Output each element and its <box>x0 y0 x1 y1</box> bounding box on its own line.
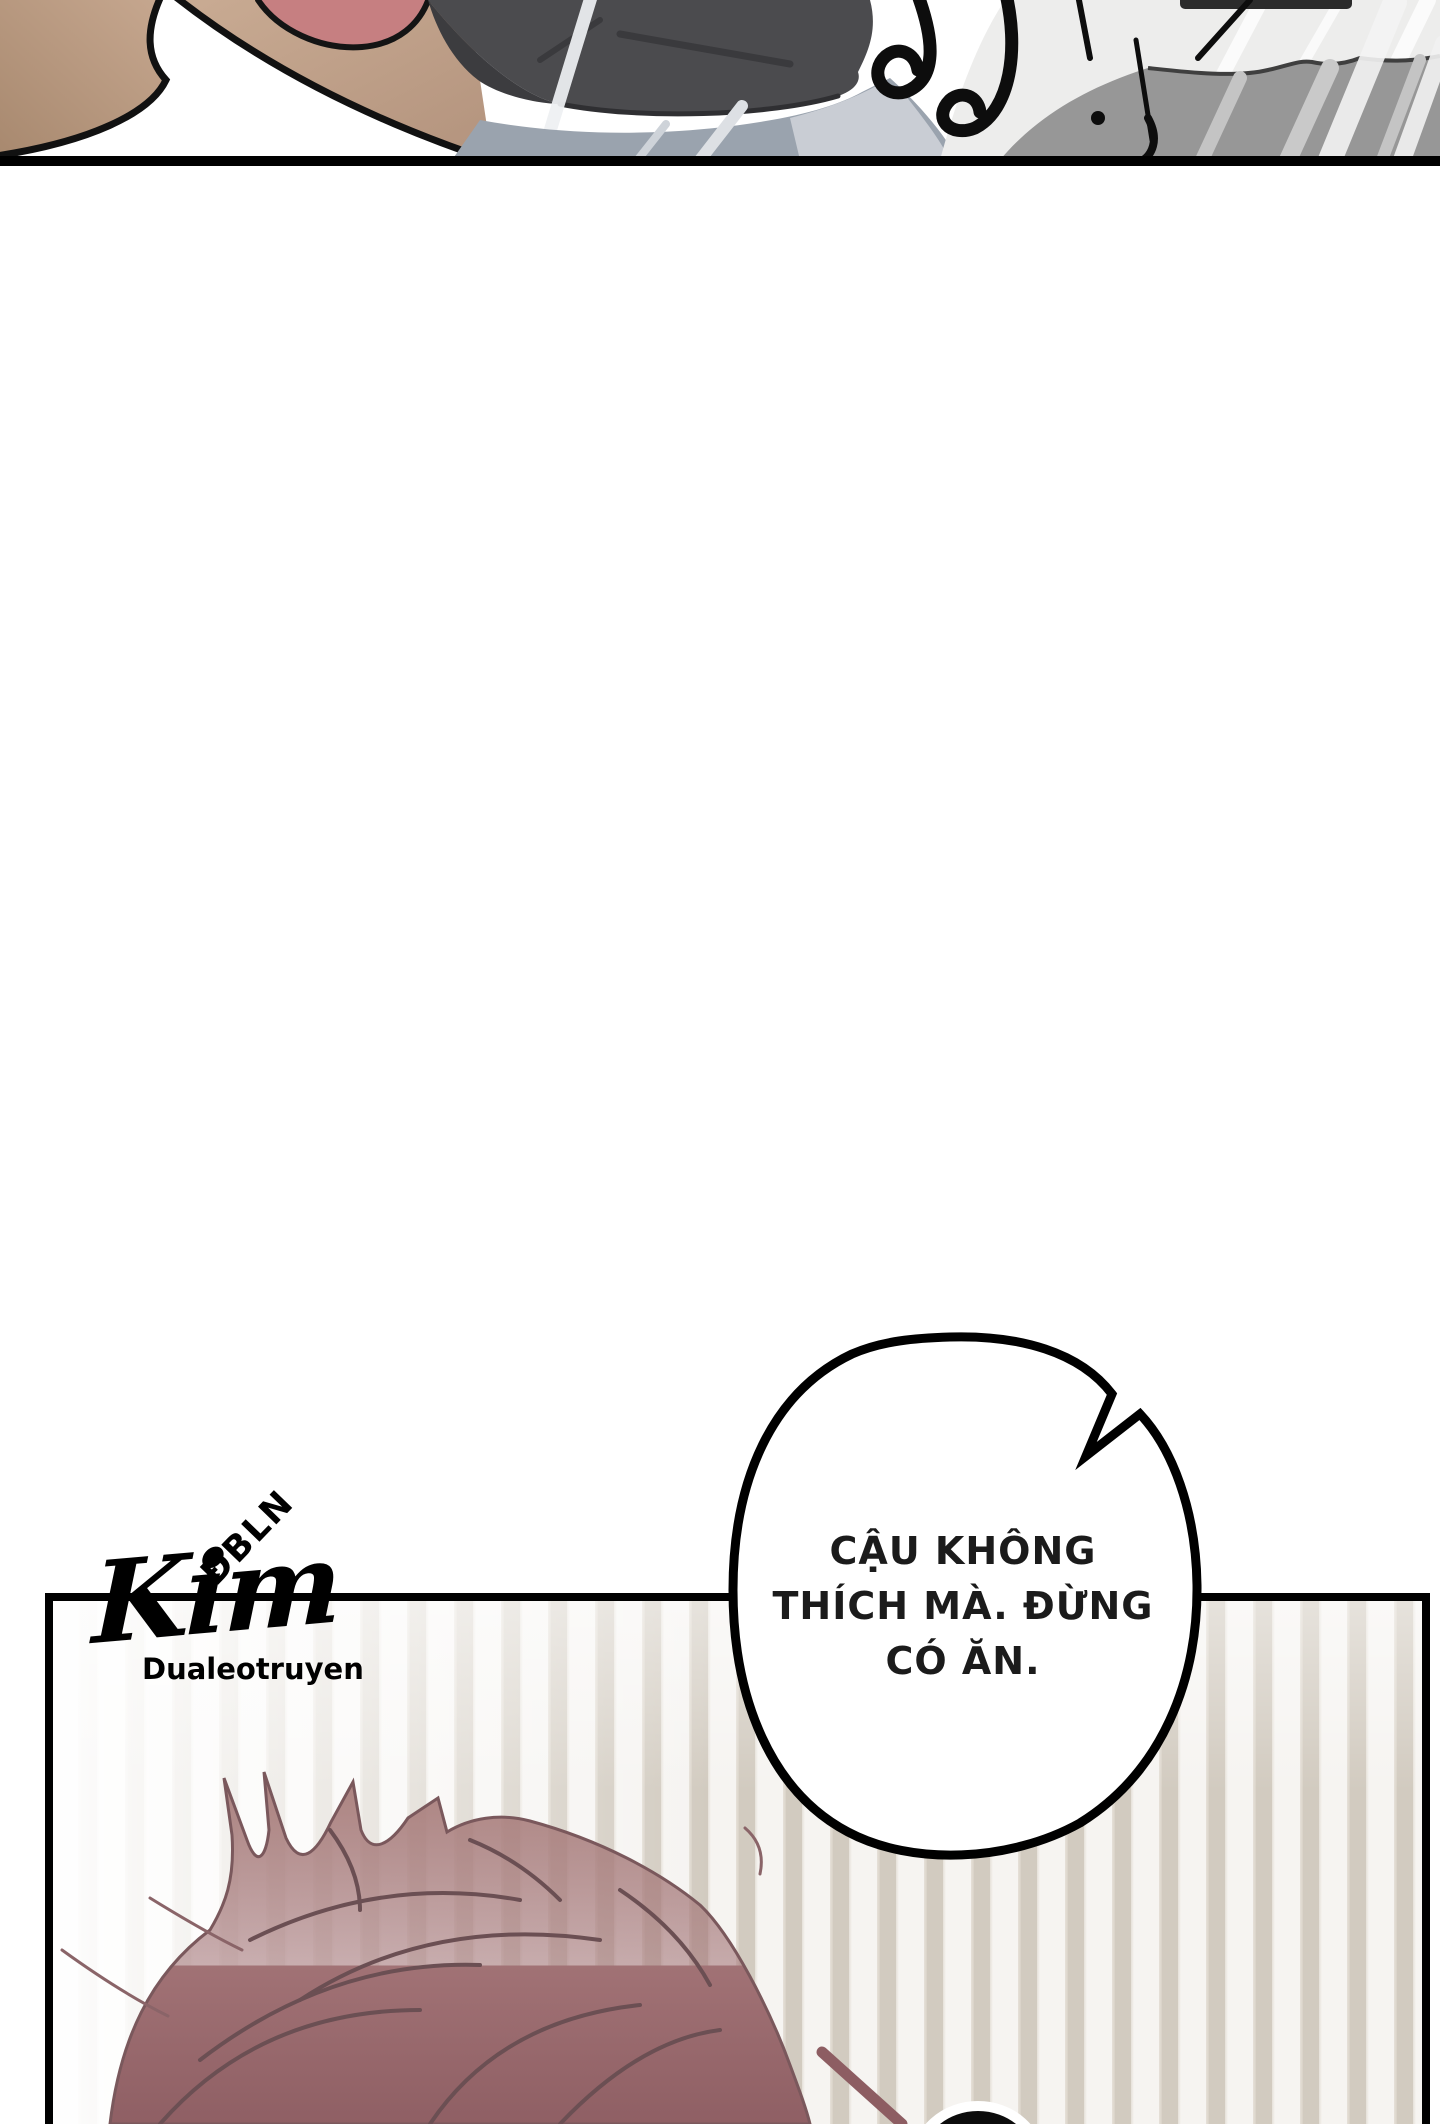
bubble-line-3: CÓ ĂN. <box>763 1634 1163 1689</box>
watermark-logo-text: Kim <box>91 1517 339 1670</box>
watermark-site-name: Dualeotruyen <box>142 1652 364 1686</box>
hair-tip-strand <box>822 2052 902 2124</box>
translator-watermark: ĐBLN Kim Dualeotruyen <box>0 1490 330 1720</box>
top-panel-border <box>0 156 1440 166</box>
dark-object-top-edge <box>1180 0 1352 9</box>
partial-shape-bottom-edge <box>916 2106 1040 2124</box>
bubble-line-1: CẬU KHÔNG <box>763 1524 1163 1579</box>
top-comic-panel <box>0 0 1440 166</box>
comic-page: CẬU KHÔNG THÍCH MÀ. ĐỪNG CÓ ĂN. ĐBLN Kim… <box>0 0 1440 2124</box>
bubble-line-2: THÍCH MÀ. ĐỪNG <box>763 1579 1163 1634</box>
speech-bubble-text: CẬU KHÔNG THÍCH MÀ. ĐỪNG CÓ ĂN. <box>763 1524 1163 1689</box>
